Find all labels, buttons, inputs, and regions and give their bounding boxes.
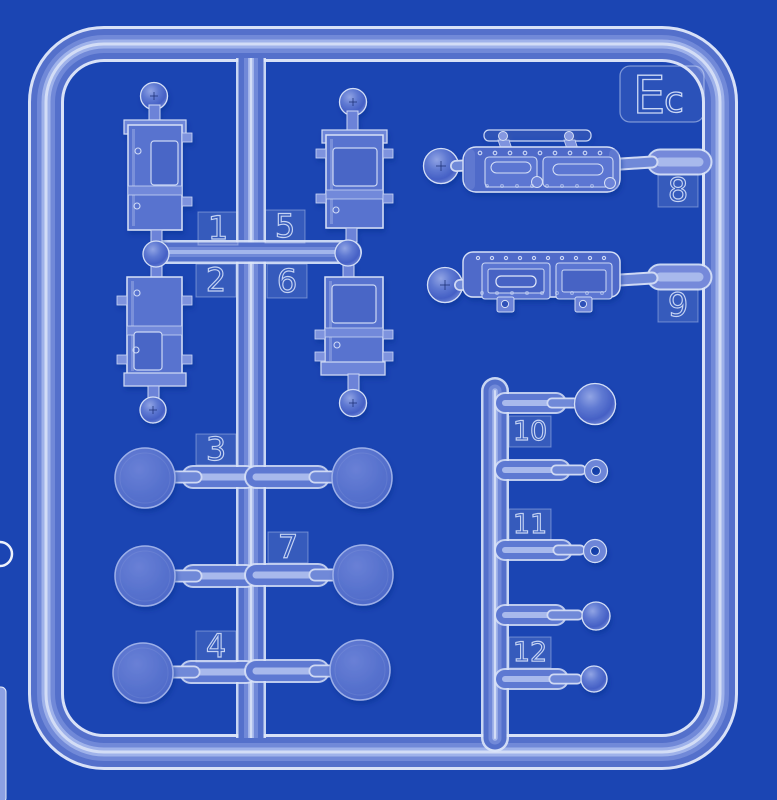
wheel-disc [330, 640, 390, 700]
part-tag-9: 9 [658, 286, 698, 324]
wheel-disc [115, 448, 175, 508]
sprue-gate-ball-left [143, 241, 169, 267]
part-tag-2: 2 [196, 261, 236, 299]
svg-text:8: 8 [668, 171, 688, 209]
part-tag-8: 8 [658, 171, 698, 209]
part-tag-1: 1 [198, 209, 238, 247]
part-tag-7: 7 [268, 528, 308, 566]
sprue-photo: 1 5 2 6 3 7 4 8 [0, 0, 777, 800]
sprue-gate-ball-middle [335, 240, 361, 266]
small-cap-part [581, 666, 607, 692]
wheel-disc [332, 448, 392, 508]
svg-text:2: 2 [206, 261, 226, 299]
filler-cap [605, 178, 616, 189]
part-tag-4: 4 [196, 627, 236, 665]
code-letter-large: E [633, 66, 666, 126]
wheel-disc [333, 545, 393, 605]
sprue-letter-code: E c [620, 66, 704, 126]
small-cap-part [582, 602, 610, 630]
svg-text:12: 12 [513, 637, 547, 668]
part-tag-11: 11 [509, 509, 551, 540]
svg-text:4: 4 [206, 627, 226, 665]
svg-text:11: 11 [513, 509, 547, 540]
handle-knob [565, 132, 574, 141]
part-tag-3: 3 [196, 430, 236, 468]
svg-text:7: 7 [278, 528, 298, 566]
bracket-hole [579, 300, 586, 307]
part-tag-12: 12 [509, 637, 551, 668]
edge-artifact-strip [0, 687, 6, 800]
svg-text:9: 9 [668, 286, 688, 324]
svg-text:1: 1 [208, 209, 228, 247]
svg-text:6: 6 [277, 262, 297, 300]
svg-text:5: 5 [275, 207, 295, 245]
panel-recess [562, 270, 606, 292]
code-letter-small: c [664, 80, 684, 121]
part-tag-5: 5 [265, 207, 305, 245]
wheel-disc [115, 546, 175, 606]
part-10-dome [575, 384, 616, 425]
svg-text:10: 10 [513, 416, 547, 447]
svg-text:3: 3 [206, 430, 226, 468]
handle-knob [499, 132, 508, 141]
bracket-hole [501, 300, 508, 307]
wheel-disc [113, 643, 173, 703]
part-tag-10: 10 [509, 416, 551, 447]
part-tag-6: 6 [267, 262, 307, 300]
